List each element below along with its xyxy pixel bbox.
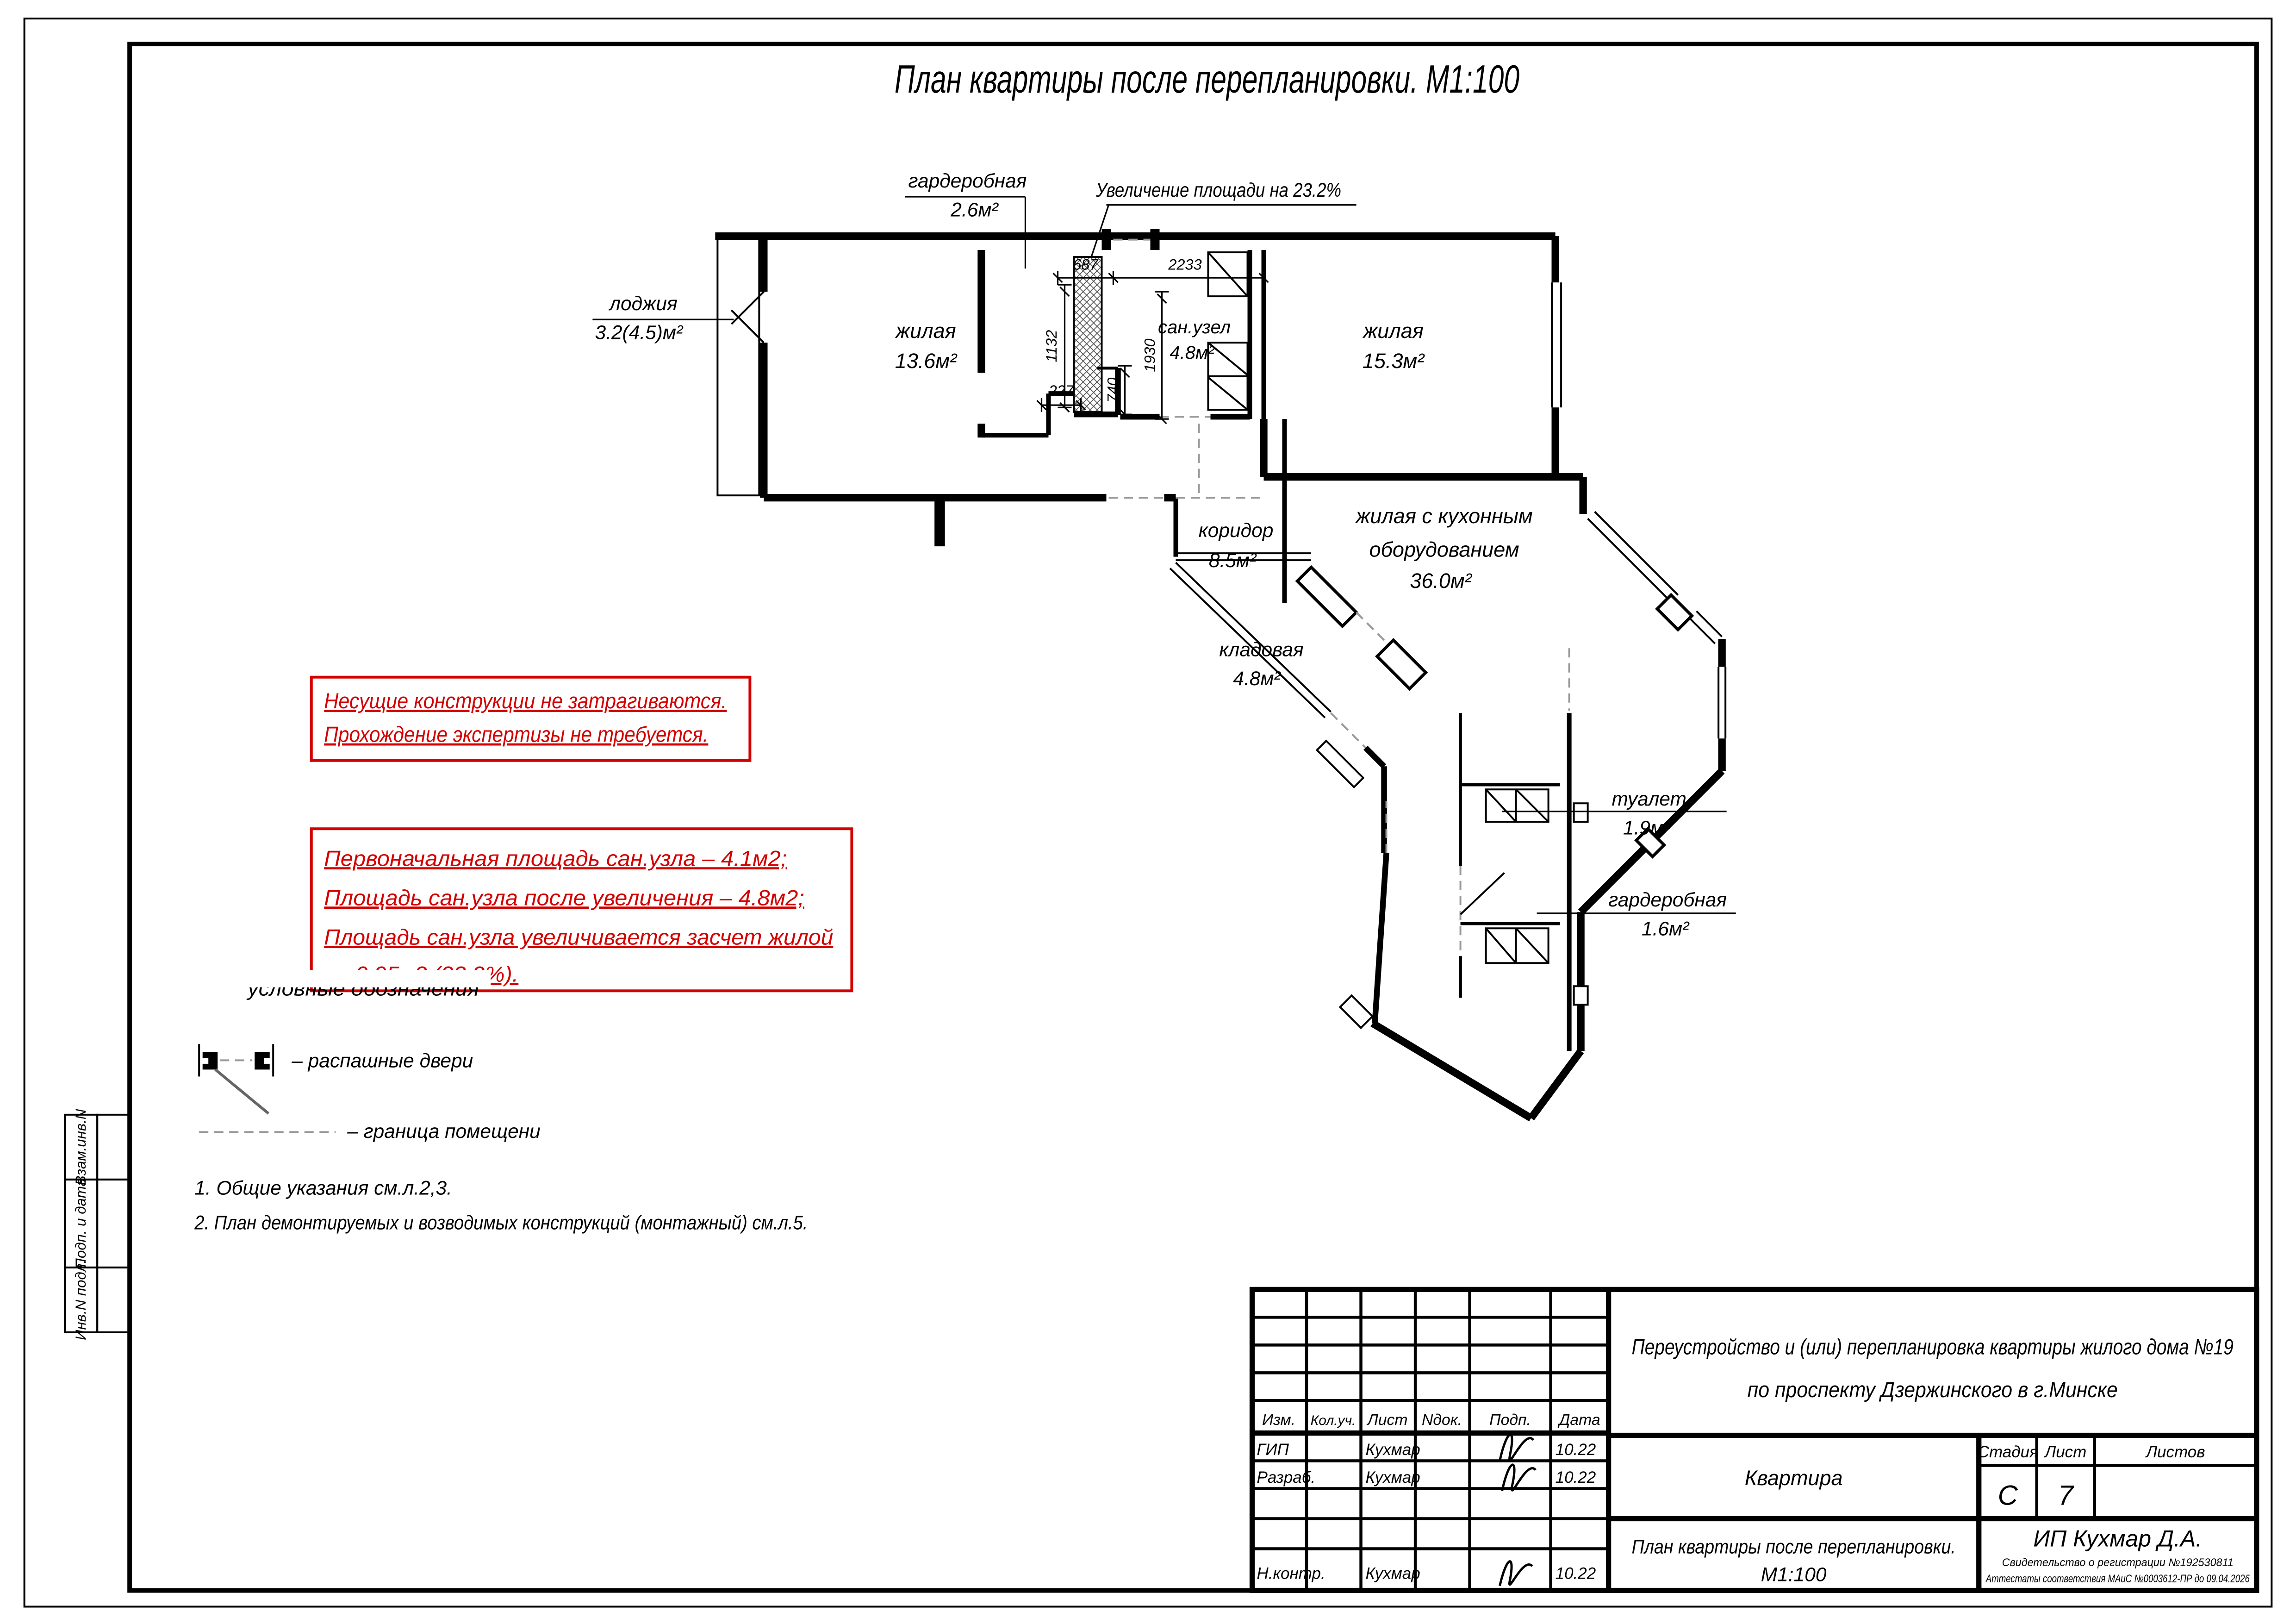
label-loggia-name: лоджия [608,293,678,315]
room-kitchen-name2: оборудованием [1369,538,1519,562]
label-wardrobe-top-name: гардеробная [908,170,1027,192]
label-wardrobe-bottom-name: гардеробная [1608,889,1727,911]
wing-corner-pier [1340,995,1373,1028]
note-2: 2. План демонтируемых и возводимых конст… [194,1212,808,1234]
corridor-walls [1176,419,1285,603]
wing-notch-1 [1574,803,1588,822]
room-labels: жилая 13.6м² жилая 15.3м² сан.узел 4.8м²… [895,317,1532,690]
col-list: Лист [1367,1411,1408,1429]
drawing-sheet: План квартиры после перепланировки. М1:1… [0,0,2296,1624]
legend-door-leader [215,1069,268,1113]
col-ndok: Nдок. [1422,1411,1462,1429]
project-line1: Переустройство и (или) перепланировка кв… [1632,1335,2234,1359]
signature-nkontr [1500,1562,1532,1586]
new-wall-hatched [1074,257,1101,412]
outer-border [25,19,2272,1606]
loggia-glazing [717,238,759,495]
wardrobe-vent-diag [1486,928,1549,963]
dim-227: 227 [1048,382,1075,399]
dim-1930: 1930 [1142,338,1158,372]
wing-notch-2 [1574,986,1588,1005]
label-increase: Увеличение площади на 23.2% [1095,180,1341,201]
notes: 1. Общие указания см.л.2,3. 2. План демо… [194,1177,808,1234]
row-gip-role: ГИП [1257,1441,1289,1459]
red-note-2: Прохождение экспертизы не требуется. [324,723,708,747]
side-box-2b [97,1180,130,1268]
note-1: 1. Общие указания см.л.2,3. [194,1177,452,1199]
sheet-label: Лист [2044,1443,2086,1461]
row-gip-date: 10.22 [1556,1441,1596,1459]
room-kitchen-area: 36.0м² [1410,569,1472,593]
storage-doors [1331,612,1394,748]
signature-gip [1500,1435,1534,1461]
wall-15-bottom [1264,419,1583,514]
bay-column [1657,595,1692,630]
stage-label: Стадия [1978,1443,2038,1461]
storage-pier [1377,640,1426,689]
label-loggia-area: 3.2(4.5)м² [595,322,684,344]
legend-door-jamb-right [255,1052,270,1070]
row-nkontr-name: Кухмар [1366,1564,1420,1582]
toilet-vent [1486,789,1549,822]
bay-window-1 [1588,512,1678,602]
side-box-3b [97,1268,130,1332]
col-data: Дата [1557,1411,1600,1429]
sheet-number: 7 [2058,1480,2075,1511]
label-wardrobe-bottom-area: 1.6м² [1642,918,1690,940]
row-razrab-date: 10.22 [1556,1468,1596,1487]
storage-corner [1366,748,1384,853]
sheets-label: Листов [2145,1443,2205,1461]
company-cert1: Свидетельство о регистрации №192530811 [2002,1556,2234,1569]
entry-jamb-left [1101,229,1111,250]
row-gip-name: Кухмар [1366,1441,1420,1459]
page-title: План квартиры после перепланировки. М1:1… [895,57,1519,101]
side-box-1b [97,1115,130,1180]
wall-wardrobe-small [981,394,1074,435]
side-label-1: Взам.инв.N [73,1109,89,1185]
label-toilet-area: 1.9м² [1623,818,1671,839]
stage-value: С [1998,1480,2018,1511]
storage-door-leaf [1317,741,1363,787]
col-podp: Подп. [1489,1411,1531,1429]
project-line2: по проспекту Дзержинского в г.Минске [1748,1378,2118,1402]
room-storage-name: кладовая [1219,639,1303,661]
row-nkontr-role: Н.контр. [1257,1564,1325,1582]
room-san-area: 4.8м² [1170,343,1215,363]
toilet-vent-diag [1486,789,1549,822]
side-label-3: Инв.N подл. [73,1260,89,1340]
wing-outer [1373,912,1581,1118]
label-wardrobe-top-area: 2.6м² [950,200,999,221]
dim-2233: 2233 [1168,256,1201,273]
room-living2-area: 15.3м² [1363,349,1425,373]
room-san-name: сан.узел [1158,317,1231,337]
room-kitchen-name1: жилая с кухонным [1355,504,1532,528]
drawing-title-line2: М1:100 [1761,1564,1827,1586]
bay-window-3 [1718,667,1725,738]
legend-boundary-label: – граница помещени [347,1121,541,1143]
company-cert2: Аттестаты соответствия МАиС №0003612-ПР … [1985,1573,2250,1585]
room-living1-area: 13.6м² [895,349,958,373]
red-note-1: Несущие конструкции не затрагиваются. [324,689,727,713]
title-block: Изм. Кол.уч. Лист Nдок. Подп. Дата ГИП К… [1252,1289,2257,1590]
window-15 [1552,282,1561,407]
col-izm: Изм. [1262,1411,1295,1429]
entry-jamb-right [1151,229,1160,250]
red-note-3: Первоначальная площадь сан.узла – 4.1м2; [324,846,787,871]
row-nkontr-date: 10.22 [1556,1564,1596,1582]
drawing-title-line1: План квартиры после перепланировки. [1632,1536,1956,1558]
storage-closet [1297,567,1356,626]
col-koluch: Кол.уч. [1311,1413,1356,1428]
bay-window-2 [1690,611,1722,643]
legend: условные обозначения – распашные двери –… [199,970,541,1143]
toilet-door-leaf [1461,873,1505,914]
side-label-2: Подп. и дата [73,1178,89,1269]
company-name: ИП Кухмар Д.А. [2033,1525,2202,1551]
leader-increase [1091,205,1356,257]
row-razrab-role: Разраб. [1257,1468,1316,1487]
room-corridor-area: 8.5м² [1209,550,1257,572]
signature-razrab [1502,1465,1536,1491]
wing-left-outer [1375,853,1387,1024]
red-note-4: Площадь сан.узла после увеличения – 4.8м… [324,886,804,910]
dim-740: 740 [1104,378,1121,403]
dim-687: 687 [1073,256,1099,273]
legend-header-clip [241,970,491,987]
legend-door-label: – распашные двери [291,1050,473,1072]
vent-shaft-1-diag [1208,252,1248,296]
label-toilet-name: туалет [1612,788,1686,810]
legend-door-jamb-left [203,1052,218,1070]
row-razrab-name: Кухмар [1366,1468,1420,1487]
room-storage-area: 4.8м² [1233,668,1281,690]
room-boundaries [1108,424,1263,498]
room-corridor-name: коридор [1199,520,1274,542]
wardrobe-vent [1486,928,1549,963]
side-label-boxes: Взам.инв.N Подп. и дата Инв.N подл. [65,1109,130,1340]
red-note-5: Площадь сан.узла увеличивается засчет жи… [324,925,833,949]
red-annotations: Несущие конструкции не затрагиваются. Пр… [311,677,852,991]
room-living1-name: жилая [895,319,956,343]
dim-1132: 1132 [1043,330,1060,362]
room-living2-name: жилая [1362,319,1423,343]
object-name: Квартира [1745,1466,1843,1490]
floor-plan: 687 2233 1132 1930 227 740 жилая 13.6м² … [592,170,1736,1118]
